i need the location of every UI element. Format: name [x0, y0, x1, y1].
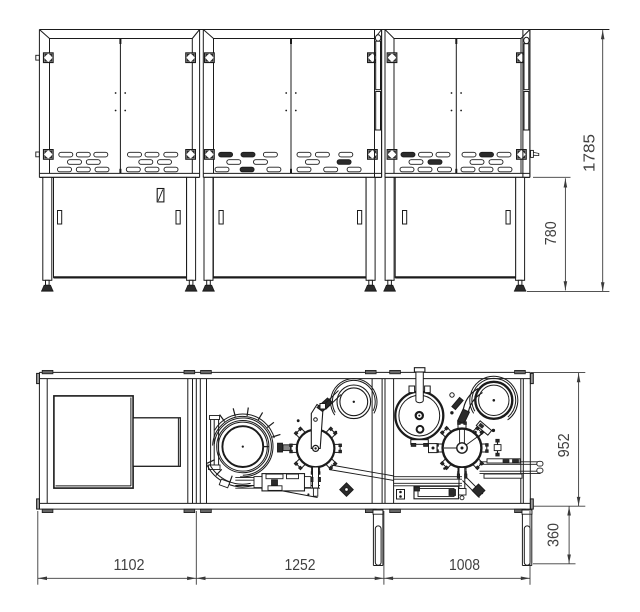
- svg-text:1252: 1252: [285, 557, 316, 574]
- svg-text:360: 360: [546, 523, 563, 547]
- svg-text:1102: 1102: [114, 557, 145, 574]
- svg-text:780: 780: [543, 221, 560, 245]
- svg-text:952: 952: [556, 433, 573, 457]
- svg-text:1008: 1008: [449, 557, 480, 574]
- svg-text:1785: 1785: [582, 134, 599, 172]
